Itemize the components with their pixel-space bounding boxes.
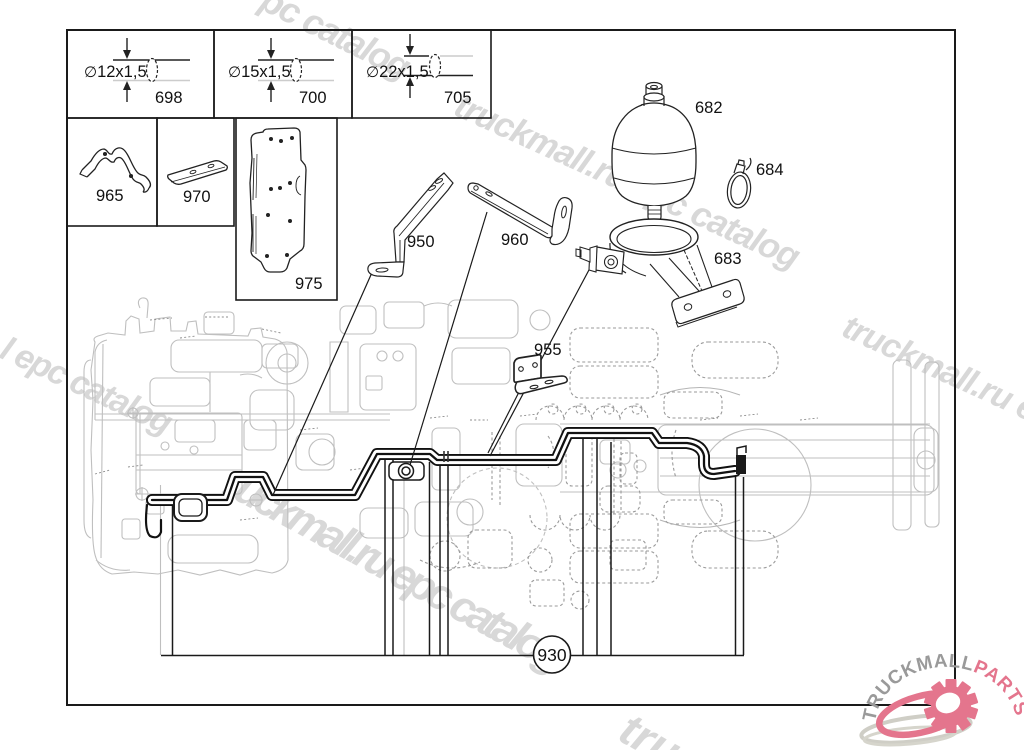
svg-text:∅22x1,5: ∅22x1,5 (366, 63, 429, 81)
svg-text:930: 930 (537, 645, 566, 665)
svg-text:∅12x1,5: ∅12x1,5 (84, 63, 147, 81)
svg-text:705: 705 (444, 89, 472, 107)
svg-text:975: 975 (295, 275, 323, 293)
svg-text:950: 950 (407, 233, 435, 251)
svg-text:970: 970 (183, 188, 211, 206)
svg-text:700: 700 (299, 89, 327, 107)
svg-text:965: 965 (96, 187, 124, 205)
svg-text:955: 955 (534, 341, 562, 359)
svg-text:684: 684 (756, 161, 784, 179)
svg-text:∅15x1,5: ∅15x1,5 (228, 63, 291, 81)
svg-text:683: 683 (714, 250, 742, 268)
svg-text:698: 698 (155, 89, 183, 107)
svg-text:960: 960 (501, 231, 529, 249)
svg-text:682: 682 (695, 99, 723, 117)
